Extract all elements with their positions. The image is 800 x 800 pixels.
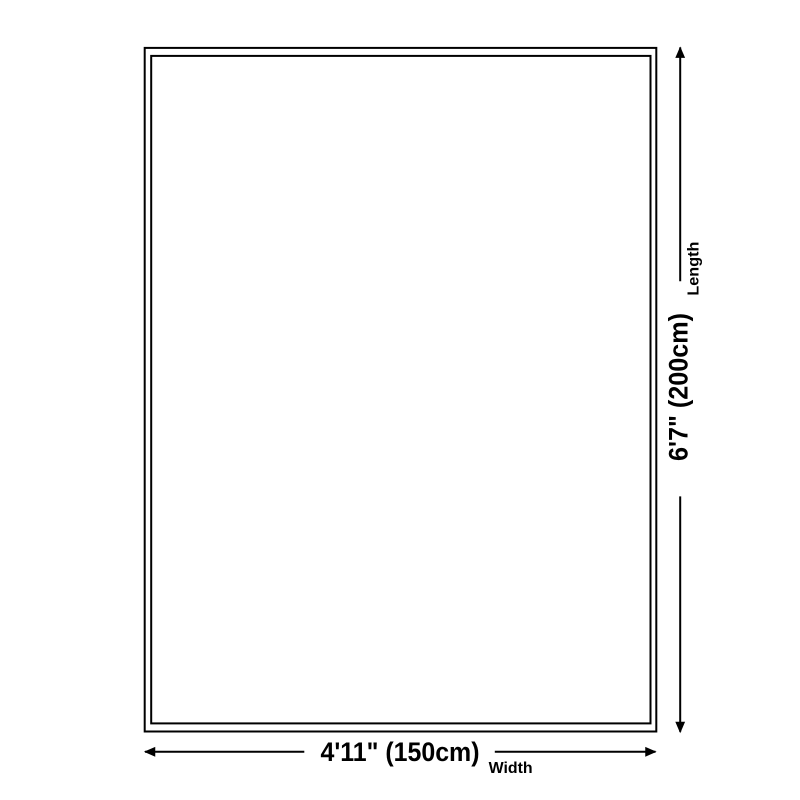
svg-text:Length: Length (685, 242, 702, 296)
svg-text:6'7" (200cm): 6'7" (200cm) (663, 313, 693, 461)
svg-text:4'11" (150cm): 4'11" (150cm) (321, 737, 480, 767)
svg-text:Width: Width (489, 760, 533, 777)
